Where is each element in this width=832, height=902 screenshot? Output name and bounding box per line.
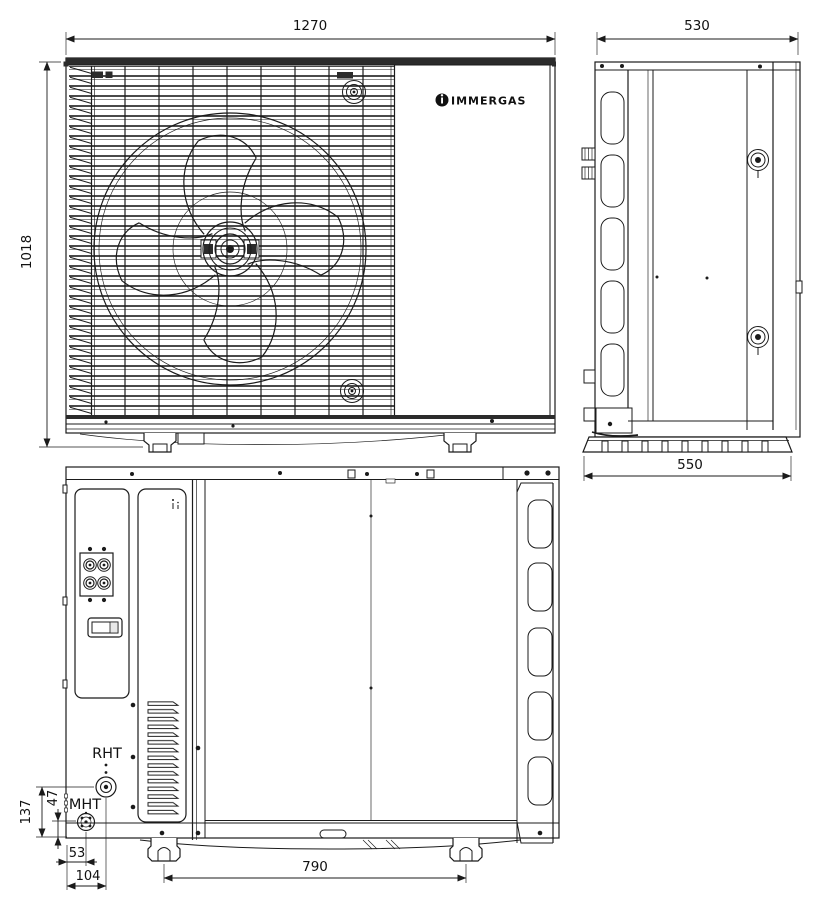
immergas-logo: IMMERGAS [436,94,527,108]
side-depth-top-dim-label: 530 [684,18,710,34]
front-top-band [66,58,555,65]
pipe-fitting-bottom [582,167,595,179]
mht-port-label: MHT [69,797,101,813]
rear-right-column [517,483,553,843]
refrigerant-ports-block [80,547,113,602]
side-panels [648,62,802,430]
base-ribs [602,441,768,452]
rear-foot-left [148,838,180,861]
port-valve [98,559,111,572]
front-view: IMMERGAS [64,58,557,452]
heat-pump-dimensional-drawing: IMMERGAS [0,0,832,902]
side-left-column [582,70,628,421]
mht-offset-dim-label: 53 [69,846,86,861]
front-foot-right [444,433,476,452]
side-base-plate [583,408,792,452]
dimension-front-width: 1270 [66,18,555,55]
rear-base [66,823,559,861]
mht-port [78,812,95,831]
louvered-vent [146,701,180,817]
rht-height-dim-label: 137 [19,800,34,825]
dimension-side-depth-top: 530 [597,18,798,55]
feet-spacing-dim-label: 790 [302,859,328,875]
rear-view: RHT MHT [63,467,559,861]
pipe-fitting-top [582,148,595,160]
port-valve [84,577,97,590]
side-body-outline [595,62,800,437]
side-view [582,62,802,452]
front-foot-left [144,433,176,452]
front-height-dim-label: 1018 [19,235,35,269]
side-depth-base-dim-label: 550 [677,457,703,473]
ground-terminal-icon [172,499,179,509]
rear-connection-panel [75,489,129,698]
port-valve [98,577,111,590]
rear-vent-panel [131,489,201,835]
rht-offset-dim-label: 104 [76,869,101,884]
panel-screw-bottom [748,327,769,356]
rear-foot-right [450,838,482,861]
rear-main-panel [193,480,518,844]
dimension-feet-spacing: 790 [164,859,466,883]
brand-logo-text: IMMERGAS [451,95,526,108]
front-width-dim-label: 1270 [293,18,327,34]
technical-drawing-page: IMMERGAS [0,0,832,902]
port-valve [84,559,97,572]
mht-height-dim-label: 47 [46,790,61,807]
panel-screw-top [748,150,769,179]
rht-port-label: RHT [92,746,122,762]
dimension-side-depth-base: 550 [584,456,791,481]
power-switch [88,618,122,637]
rear-body-outline [66,467,559,838]
front-right-panel: IMMERGAS [436,65,551,415]
rht-port [96,764,116,797]
